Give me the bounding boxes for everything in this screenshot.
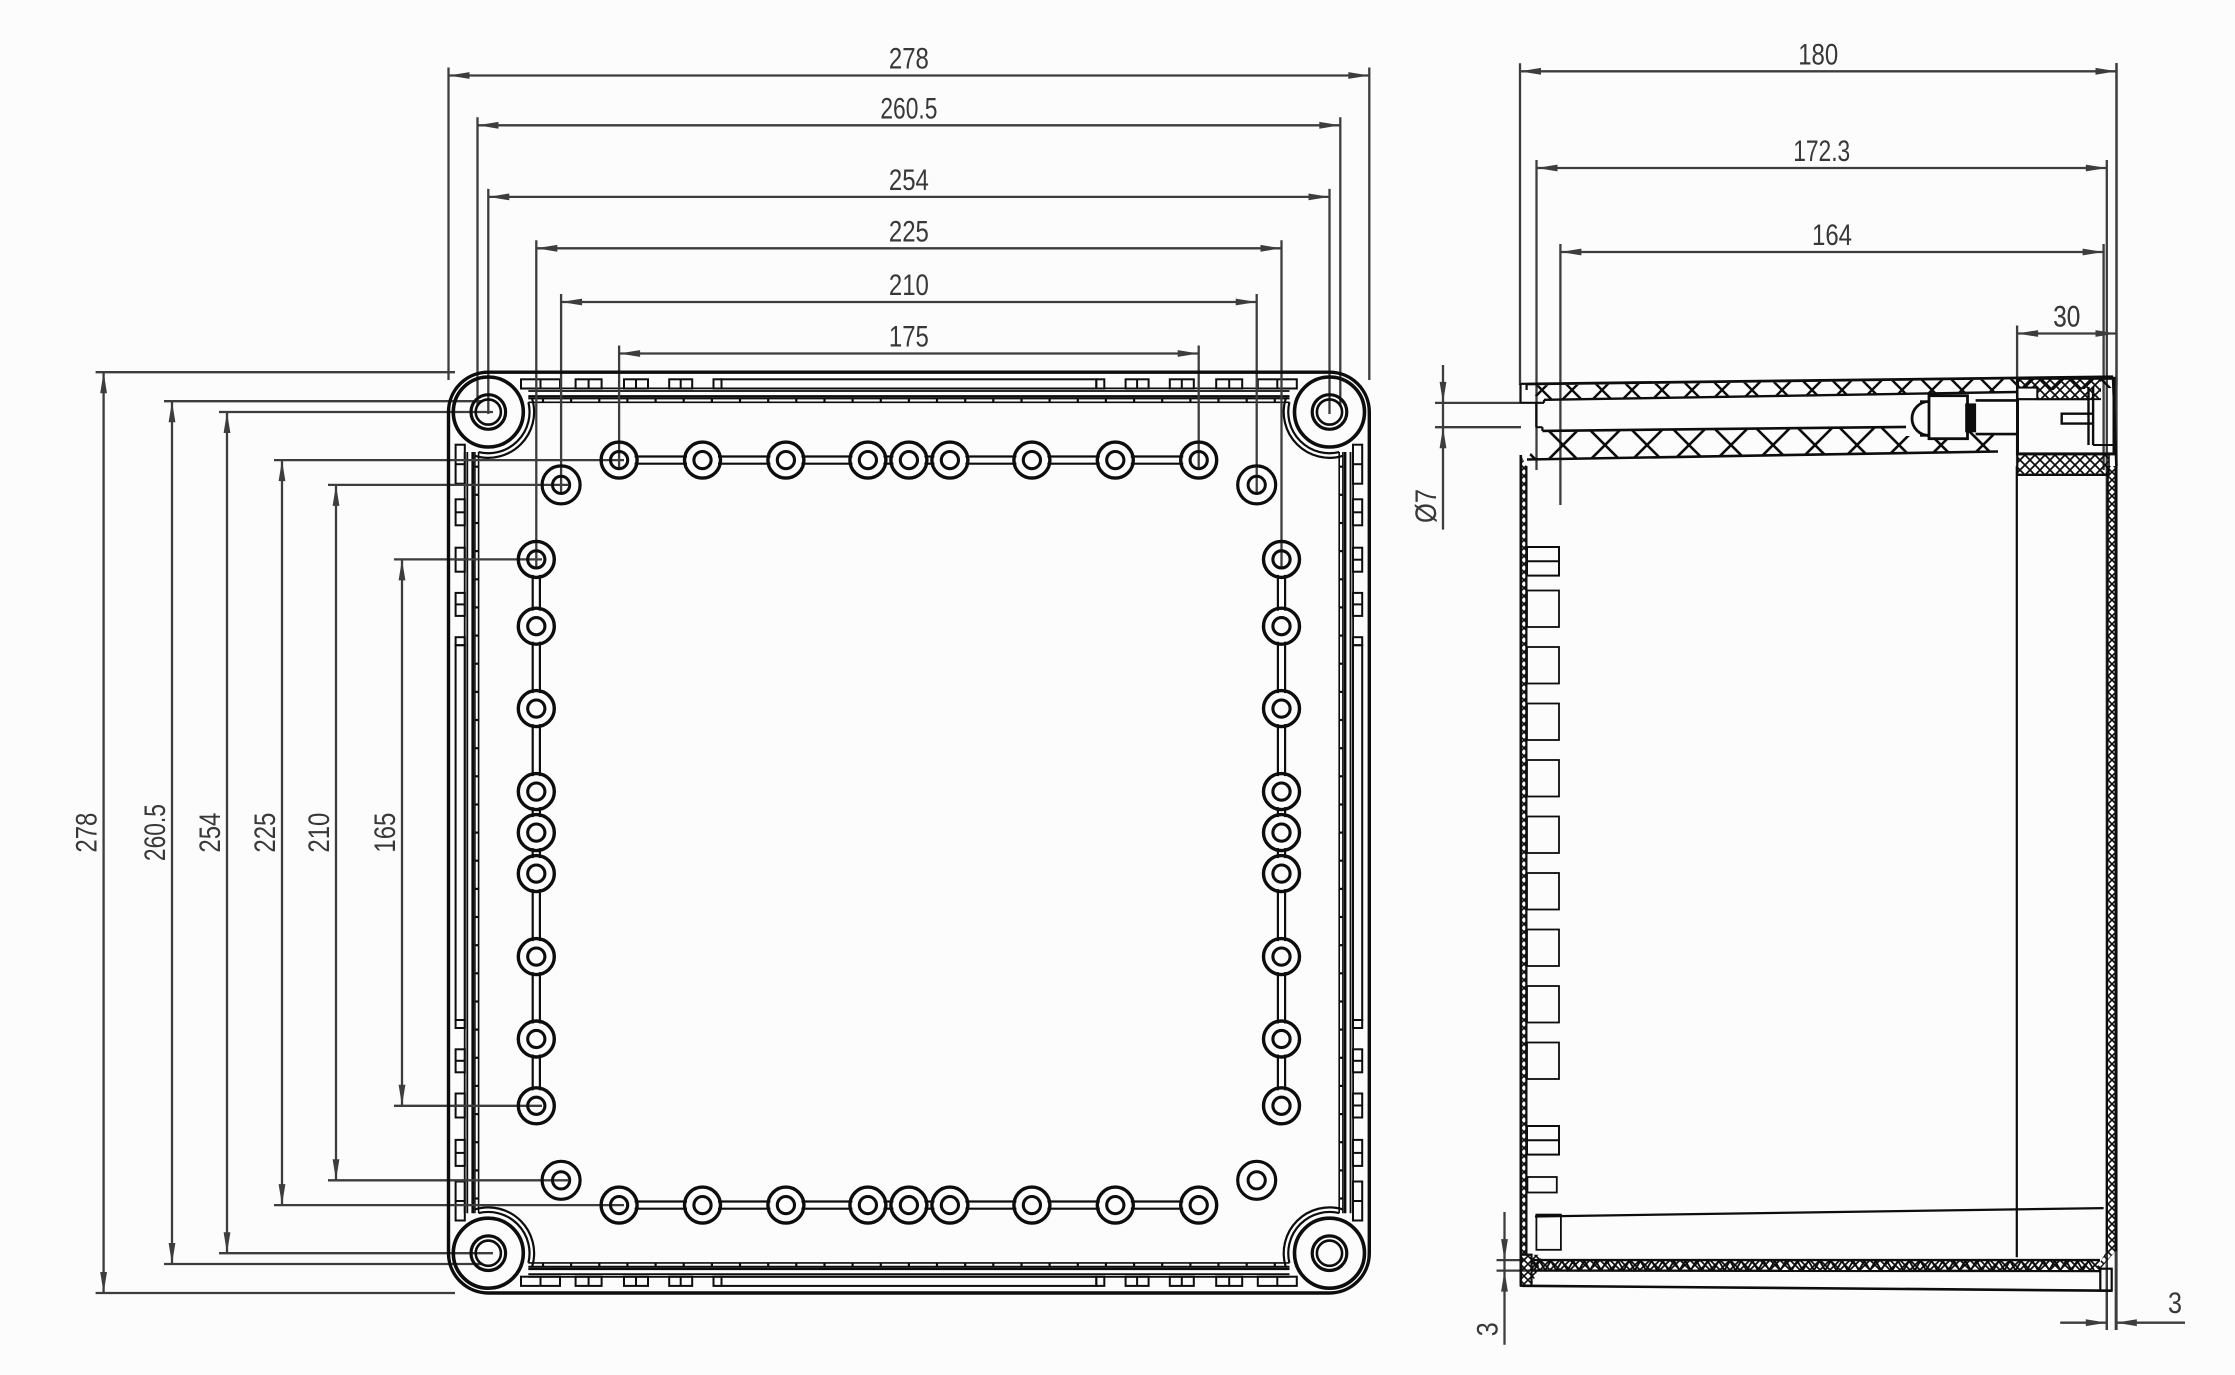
svg-text:3: 3 xyxy=(1472,1322,1505,1336)
svg-text:260.5: 260.5 xyxy=(880,92,937,125)
svg-text:165: 165 xyxy=(369,813,402,853)
svg-text:254: 254 xyxy=(889,164,929,197)
svg-text:278: 278 xyxy=(889,43,929,76)
svg-text:30: 30 xyxy=(2053,301,2080,334)
svg-text:210: 210 xyxy=(303,813,336,853)
svg-text:278: 278 xyxy=(71,813,104,853)
svg-text:260.5: 260.5 xyxy=(139,804,172,861)
svg-text:172.3: 172.3 xyxy=(1793,135,1850,168)
svg-text:225: 225 xyxy=(249,813,282,853)
svg-text:254: 254 xyxy=(194,813,227,853)
svg-text:3: 3 xyxy=(2168,1287,2182,1320)
svg-text:175: 175 xyxy=(889,321,929,354)
svg-text:164: 164 xyxy=(1812,219,1852,252)
svg-text:210: 210 xyxy=(889,269,929,302)
svg-text:225: 225 xyxy=(889,215,929,248)
svg-text:Ø7: Ø7 xyxy=(1410,489,1443,523)
svg-text:180: 180 xyxy=(1798,38,1838,71)
